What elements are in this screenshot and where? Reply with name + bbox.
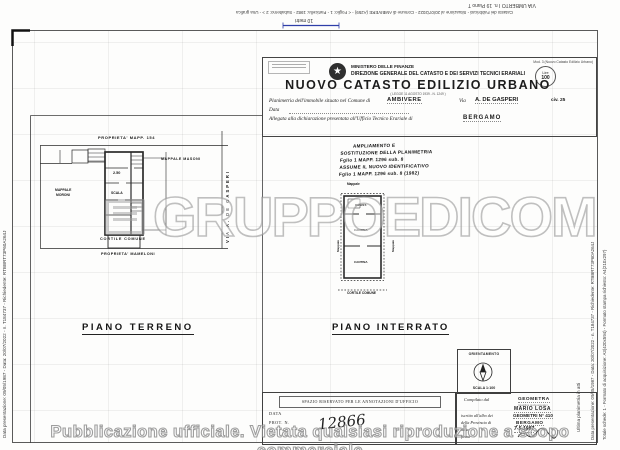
form-comune-value: AMBIVERE: [387, 97, 422, 104]
bottom-watermark: Pubblicazione ufficiale. Vietata qualsia…: [0, 423, 620, 450]
direction-line: DIREZIONE GENERALE DEL CATASTO E DEI SER…: [351, 71, 525, 77]
mod-label: Mod. 3 (Nuovo Catasto Edilizio Urbano): [493, 60, 593, 64]
form-line1-label: Planimetria dell'immobile situato nel Co…: [269, 98, 370, 104]
margin-catasto-line: Catasto dei Fabbricati - Situazione al 2…: [236, 10, 513, 15]
office-box-title: SPAZIO RISERVATO PER LE ANNOTAZIONI D'UF…: [280, 399, 440, 404]
compass-title: ORIENTAMENTO: [458, 352, 510, 356]
margin-left-vertical: Data presentazione: 09/05/1987 - Data: 2…: [2, 231, 7, 438]
surveyor-compiled-label: Compilato dal: [464, 397, 489, 402]
form-data-rule: [289, 107, 409, 114]
scale-bar: [283, 23, 339, 29]
compass-scale: SCALA 1:100: [458, 386, 510, 390]
form-via-label: Via: [459, 98, 466, 104]
ministry-line: MINISTERO DELLE FINANZE: [351, 64, 414, 69]
margin-address-line: VIA UMBERTO I n. 19 Piano T: [468, 2, 536, 8]
watermark-brand: GRUPPOEDICOM: [153, 192, 596, 242]
terreno-left-label-2: MORONI: [56, 193, 70, 197]
form-via-value: A. DE GASPERI: [475, 97, 518, 104]
document-title: NUOVO CATASTO EDILIZIO URBANO: [263, 78, 573, 92]
compass-box: ORIENTAMENTO SCALA 1:100: [457, 349, 511, 394]
terreno-room-height: 2.50: [113, 171, 120, 175]
handwritten-note: AMPLIAMENTO E SOSTITUZIONE DELLA PLANIME…: [339, 141, 433, 178]
office-data-label: DATA: [269, 411, 282, 416]
header-form-box: ★ MINISTERO DELLE FINANZE DIREZIONE GENE…: [262, 57, 597, 137]
center-watermark: GRUPPOEDICOM: [105, 192, 596, 242]
interrato-room-low: CANTINA: [354, 260, 368, 264]
form-civ-value: civ. 25: [551, 98, 565, 103]
office-title-frame: SPAZIO RISERVATO PER LE ANNOTAZIONI D'UF…: [279, 396, 441, 408]
terreno-floor-title: PIANO TERRENO: [82, 322, 194, 335]
office-stamp: [268, 61, 310, 74]
terreno-left-label-1: MAPPALE: [55, 188, 71, 192]
scanned-planimetria-page: VIA UMBERTO I n. 19 Piano T Catasto dei …: [0, 0, 620, 450]
corner-mark: [13, 31, 31, 47]
margin-right-vertical-3: Totale schede: 1 - Formato di acquisizio…: [602, 250, 607, 440]
surveyor-albo-value: GEOMETRI N° 410: [513, 413, 553, 419]
interrato-bottom-label: CORTILE COMUNE: [347, 291, 376, 295]
scale-bar-label: 10 metri: [295, 17, 313, 23]
terreno-right-label: MAPPALE MASONI: [161, 157, 201, 161]
terreno-top-label: PROPRIETA' MAPP. 154: [98, 135, 155, 140]
watermark-logo-icon: [105, 199, 145, 235]
interrato-floor-title: PIANO INTERRATO: [332, 322, 449, 335]
form-ufficio-label: Allegata alla dichiarazione presentata a…: [269, 116, 413, 122]
terreno-bottom-label: PROPRIETA' MAMELONI: [101, 252, 155, 256]
surveyor-albo-label: iscritto all'albo dei: [461, 413, 493, 418]
form-data-label: Data: [269, 107, 279, 113]
form-ufficio-value: BERGAMO: [463, 115, 501, 122]
law-note: ( LEGGE 11 AGOSTO 1939 - N. 1249 ): [263, 92, 573, 96]
